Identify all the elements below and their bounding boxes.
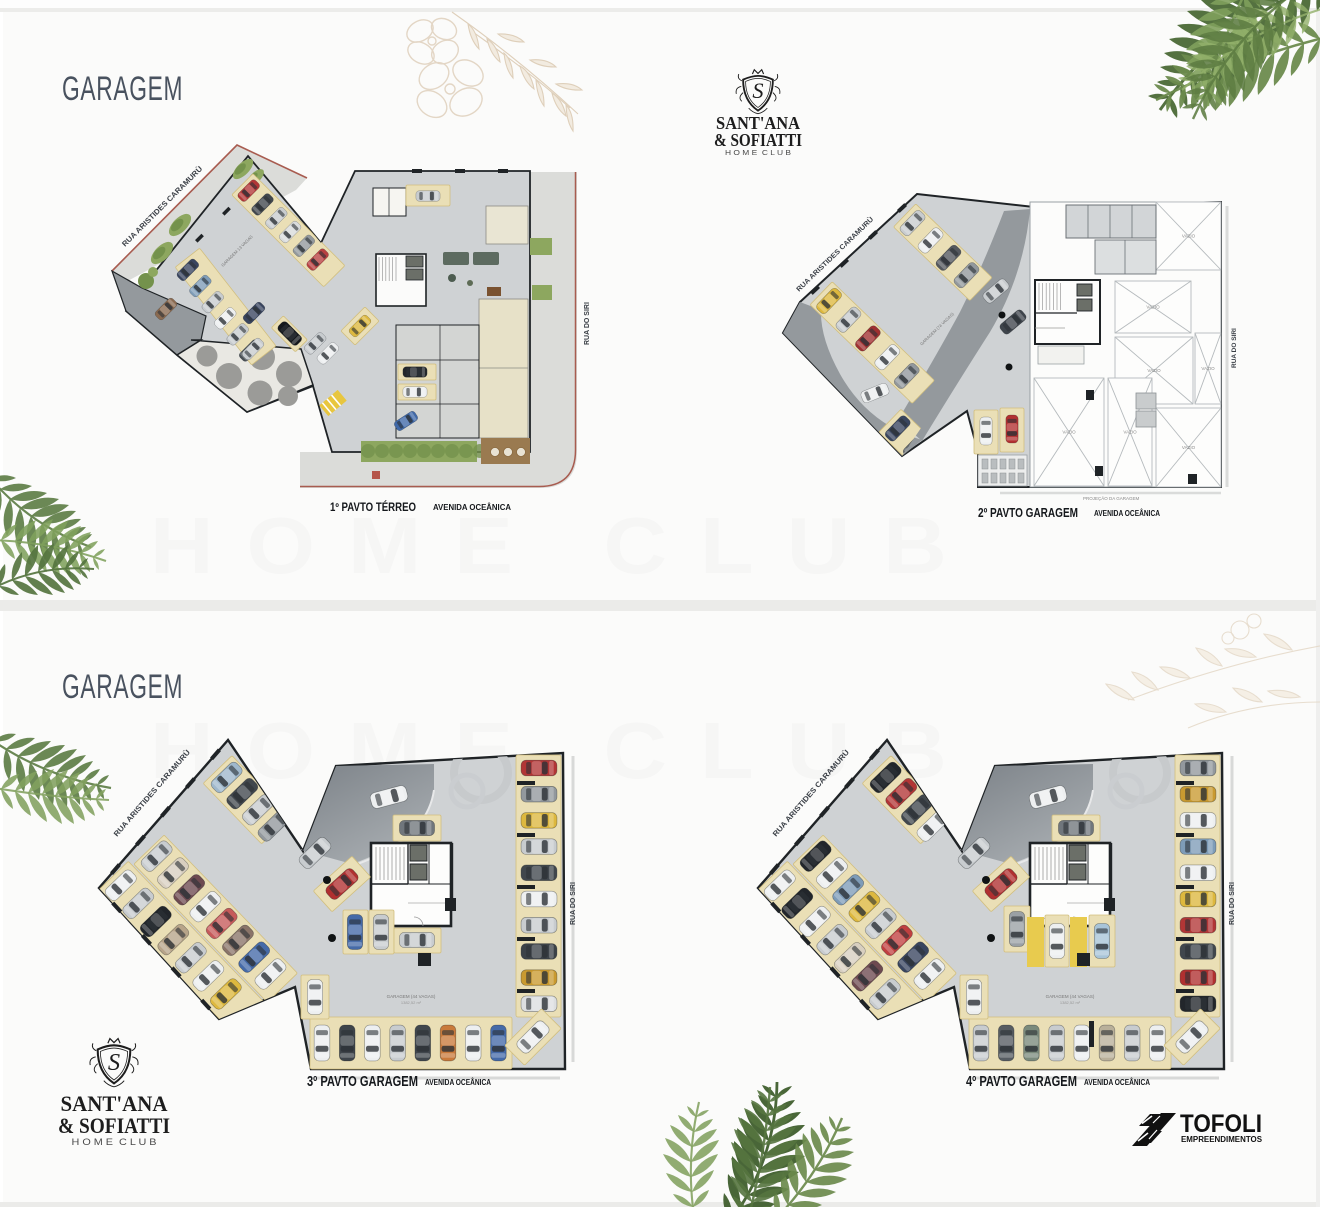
- svg-text:GARAGEM (44 VAGAS): GARAGEM (44 VAGAS): [1046, 994, 1095, 999]
- svg-text:1382,52 m²: 1382,52 m²: [1060, 1000, 1081, 1005]
- svg-text:AVENIDA OCEÂNICA: AVENIDA OCEÂNICA: [1084, 1076, 1150, 1087]
- svg-text:RUA DO SIRI: RUA DO SIRI: [1229, 882, 1236, 925]
- svg-text:4º PAVTO GARAGEM: 4º PAVTO GARAGEM: [966, 1074, 1077, 1090]
